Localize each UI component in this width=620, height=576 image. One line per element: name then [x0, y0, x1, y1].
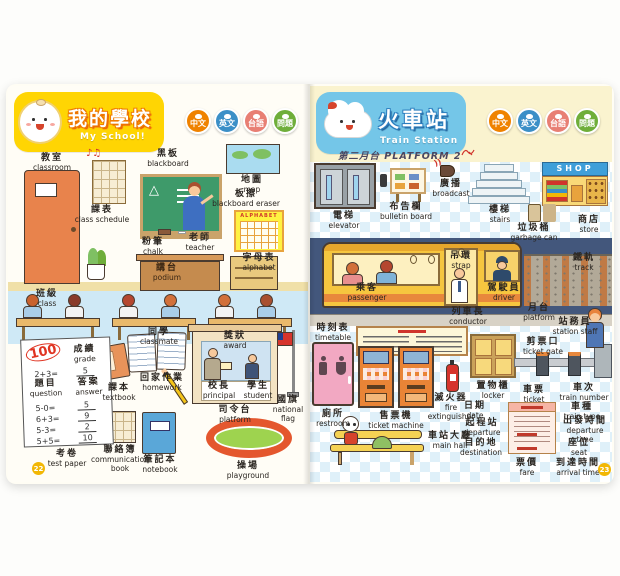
student-body [215, 306, 234, 318]
elevator-door [320, 169, 343, 205]
loudspeaker [440, 165, 455, 177]
mascot-eyes [340, 120, 343, 123]
music-notes: ♪♫ [86, 148, 101, 159]
plant-leaves [88, 248, 98, 264]
student-body [119, 306, 138, 318]
passenger-body [376, 272, 397, 284]
label-ticket-gate: 剪票口ticket gate [514, 338, 572, 357]
label-blackboard: 黑板blackboard [134, 150, 202, 169]
shop-shelf [546, 180, 568, 202]
en: restroom [310, 420, 356, 429]
en: broadcast [426, 190, 476, 199]
en: fare [510, 469, 544, 478]
en: passenger [336, 294, 398, 303]
label-ticket-machine: 售票機ticket machine [362, 412, 430, 431]
label-classroom: 教室classroom [18, 154, 86, 173]
en: class schedule [62, 216, 142, 225]
machine-screen [363, 351, 389, 364]
en: departure [458, 429, 506, 438]
door-window [353, 175, 359, 200]
score-100: 100 [24, 340, 62, 364]
label-driver: 駕駛員driver [478, 284, 530, 303]
desk [16, 318, 100, 327]
fire-extinguisher [446, 364, 459, 392]
board-legs [396, 194, 399, 202]
label-ticket: 車票ticket [514, 386, 554, 405]
platform-sign: 第二月台 PLATFORM 2 [338, 148, 468, 162]
label-podium: 講台podium [144, 264, 190, 283]
en: elevator [316, 222, 372, 231]
lang-button-taiwanese: 台語 [545, 108, 571, 134]
label-principal: 校長principal [198, 382, 240, 401]
timetable-header [398, 330, 426, 333]
machine-screen [403, 351, 429, 364]
label-blackboard-eraser: 板擦blackboard eraser [206, 190, 286, 209]
dispenser-tray [365, 393, 387, 402]
alphabet-letter-grid [240, 221, 278, 249]
mascot-topknot [36, 99, 46, 106]
class-schedule-chart [92, 160, 126, 204]
book-gutter [303, 84, 315, 484]
male-icon-head [321, 356, 326, 361]
label-strap: 吊環strap [442, 252, 480, 271]
female-icon-body [336, 362, 346, 375]
lang-label: 中文 [492, 120, 508, 128]
problem-a: 10 [78, 433, 96, 444]
problem-a: 9 [78, 411, 96, 422]
problem-q: 5+5= [37, 436, 61, 446]
page-number-left: 22 [32, 462, 45, 475]
gate-machine [594, 344, 612, 378]
en: ticket machine [362, 422, 430, 431]
locker-door [475, 339, 492, 356]
label-timetable: 時刻表timetable [310, 324, 356, 343]
en: teacher [174, 244, 226, 253]
school-page-subtitle: My School! [80, 132, 146, 142]
label-train-number: 車次train number [558, 384, 610, 403]
shop-counter [571, 185, 583, 202]
label-homework: 回家作業homework [134, 374, 190, 393]
map-landmass [253, 149, 271, 159]
label-classmate: 同學classmate [130, 328, 188, 347]
label-class: 班級class [22, 290, 72, 309]
lang-label: 問題 [277, 120, 293, 128]
en: question [25, 389, 67, 399]
label-chalk: 粉筆chalk [130, 238, 176, 257]
stair-step [476, 180, 522, 188]
desk [112, 318, 196, 327]
cloud-bow [328, 102, 337, 109]
coin-slot [407, 385, 425, 389]
door-knob [71, 227, 76, 232]
ticket-vending-machine [358, 346, 394, 408]
lang-label: 英文 [521, 120, 537, 128]
tie [458, 281, 461, 292]
en: store [568, 226, 610, 235]
label-stairs: 樓梯stairs [480, 206, 520, 225]
mascot-shirt [344, 432, 358, 445]
en: seat [560, 449, 598, 458]
problem-q: 6+3= [36, 414, 60, 424]
label-locker: 置物櫃locker [472, 382, 514, 401]
en: timetable [310, 334, 356, 343]
notebook-label [150, 421, 170, 431]
en: homework [134, 384, 190, 393]
en: notebook [134, 466, 186, 475]
classroom-door [24, 170, 80, 284]
mascot-cheeks [26, 123, 31, 126]
desk-legs [22, 327, 25, 340]
school-title-banner: 我的學校 My School! [14, 92, 164, 152]
label-question: 題目question [25, 379, 68, 399]
label-alphabet: 字母表alphabet [232, 254, 286, 273]
en: platform [206, 416, 264, 425]
bulletin-board [390, 168, 426, 194]
lang-label: 台語 [248, 120, 264, 128]
en: classroom [18, 164, 86, 173]
en: locker [472, 392, 514, 401]
label-departure: 起程站departure [458, 419, 506, 438]
label-playground: 操場playground [210, 462, 286, 481]
problem-q: 5-0= [35, 403, 55, 413]
extinguisher-nozzle [450, 360, 454, 365]
bun-mascot [18, 100, 62, 144]
notices [395, 174, 405, 180]
en: podium [144, 274, 190, 283]
book-spread: 我的學校 My School! 中文 英文 台語 問題 教室classroom … [6, 84, 614, 484]
lang-button-english: 英文 [214, 108, 240, 134]
door-window [326, 175, 332, 200]
en: conductor [440, 318, 496, 327]
hanging-strap [428, 255, 435, 264]
male-icon-body [319, 362, 327, 375]
stairs [468, 162, 530, 204]
page-my-school: 我的學校 My School! 中文 英文 台語 問題 教室classroom … [8, 86, 308, 482]
lang-button-chinese: 中文 [185, 108, 211, 134]
student-body [161, 306, 180, 318]
en: track [560, 264, 608, 273]
en: ticket gate [514, 348, 572, 357]
label-fare: 票價fare [510, 459, 544, 478]
lang-button-question: 問題 [272, 108, 298, 134]
locker-door [495, 358, 512, 375]
restroom-door [312, 342, 354, 406]
en: alphabet [232, 264, 286, 273]
student-body [257, 306, 276, 318]
train-ticket [508, 402, 556, 454]
ticket-text-rows [514, 416, 550, 444]
mascot-mouth [36, 124, 44, 130]
driver-face [497, 261, 507, 270]
label-grade: 成績grade [61, 345, 108, 365]
lang-label: 台語 [550, 120, 566, 128]
en: playground [210, 472, 286, 481]
label-restroom: 廁所restroom [310, 410, 356, 429]
stair-step [472, 188, 526, 196]
stair-step [468, 196, 530, 204]
label-track: 鐵軌track [560, 254, 608, 273]
lang-button-taiwanese: 台語 [243, 108, 269, 134]
en: driver [478, 294, 530, 303]
shop-sign: SHOP [542, 162, 608, 176]
cloud-puff [346, 102, 364, 120]
problem-a: 5 [76, 366, 94, 377]
locker-door [475, 358, 492, 375]
en: bulletin board [376, 213, 436, 222]
bird-doodle [460, 146, 476, 158]
plant-pot [87, 264, 105, 280]
lang-button-english: 英文 [516, 108, 542, 134]
label-passenger: 乘客passenger [336, 284, 398, 303]
stair-step [484, 164, 514, 172]
en: station staff [540, 328, 610, 337]
map-landmass [232, 151, 248, 159]
chalk-triangle-drawing: △ [149, 183, 159, 198]
en: blackboard [134, 160, 202, 169]
en: strap [442, 262, 480, 271]
shop-storefront [542, 176, 608, 206]
en: classmate [130, 338, 188, 347]
label-store: 商店store [568, 216, 610, 235]
en: chalk [130, 248, 176, 257]
label-broadcast: 廣播broadcast [426, 180, 476, 199]
label-destination: 目的地destination [456, 439, 506, 458]
label-class-schedule: 課表class schedule [62, 206, 142, 225]
label-award: 獎狀award [210, 332, 260, 351]
elevator [314, 163, 376, 209]
elevator-call-panel [380, 174, 387, 187]
lockers [470, 334, 516, 378]
alphabet-chart: ALPHABET [234, 210, 284, 252]
suit [204, 358, 221, 380]
label-teacher: 老師teacher [174, 234, 226, 253]
station-page-subtitle: Train Station [380, 136, 458, 146]
page-train-station: 火車站 Train Station 中文 英文 台語 問題 第二月台 PLATF… [310, 86, 612, 482]
garbage-cans [528, 204, 541, 222]
problem-q: 5-3= [36, 425, 56, 435]
elevator-door [347, 169, 370, 205]
label-elevator: 電梯elevator [316, 212, 372, 231]
en: ticket [514, 396, 554, 405]
label-conductor: 列車長conductor [440, 308, 496, 327]
shop-bottle-rack [586, 179, 606, 204]
hanging-strap [410, 255, 417, 264]
desk-legs [118, 327, 121, 340]
face [248, 354, 257, 363]
alphabet-chart-title: ALPHABET [236, 213, 282, 219]
world-map [226, 144, 280, 174]
eraser-block [158, 229, 171, 235]
book-photo: 我的學校 My School! 中文 英文 台語 問題 教室classroom … [0, 0, 620, 576]
female-icon-head [339, 356, 344, 361]
label-platform-stage: 司令台platform [206, 406, 264, 425]
en: destination [456, 449, 506, 458]
uniform [245, 363, 259, 379]
lang-button-question: 問題 [574, 108, 600, 134]
label-garbage-can: 垃圾桶garbage can [506, 224, 562, 243]
door-handle [348, 376, 351, 384]
ticket-header-text [521, 406, 543, 409]
turtle-backpack [372, 436, 392, 449]
lang-button-chinese: 中文 [487, 108, 513, 134]
en: award [210, 342, 260, 351]
label-bulletin-board: 布告欄bulletin board [376, 203, 436, 222]
train-window [332, 253, 440, 286]
page-number-right: 23 [598, 463, 611, 476]
driver-body [493, 270, 511, 281]
school-page-title: 我的學校 [68, 104, 152, 131]
stair-step [480, 172, 518, 180]
station-page-title: 火車站 [378, 104, 450, 134]
en: national flag [266, 406, 308, 423]
en: principal [198, 392, 240, 401]
machine-buttons [363, 368, 389, 380]
lang-label: 問題 [579, 120, 595, 128]
bench-legs [338, 452, 342, 465]
label-station-staff: 站務員station staff [540, 318, 610, 337]
en: blackboard eraser [206, 200, 286, 209]
lang-label: 英文 [219, 120, 235, 128]
problem-a: 2 [78, 422, 96, 433]
locker-door [495, 339, 512, 356]
face [189, 186, 200, 196]
en: grade [62, 354, 108, 364]
en: garbage can [506, 234, 562, 243]
coin-slot [367, 385, 385, 389]
station-title-banner: 火車站 Train Station [316, 92, 466, 154]
door-window [35, 183, 57, 197]
mascot-eyes [32, 118, 35, 121]
label-seat: 座位seat [560, 439, 598, 458]
label-national-flag: 國旗national flag [266, 396, 308, 423]
certificate [220, 362, 232, 370]
lang-label: 中文 [190, 120, 206, 128]
problem-a: 5 [77, 400, 95, 411]
label-notebook: 筆記本notebook [134, 456, 186, 475]
en: textbook [96, 394, 142, 403]
en: class [22, 300, 72, 309]
driver-cab [484, 250, 520, 282]
machine-buttons [403, 368, 429, 380]
extinguisher-label [450, 374, 456, 381]
ticket-red-numbers [517, 447, 537, 450]
